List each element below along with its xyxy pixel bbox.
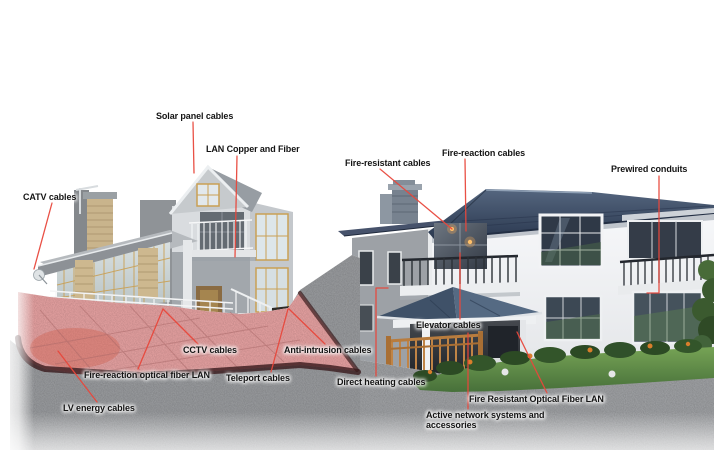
- garden-lamp-icon: [502, 369, 509, 376]
- label-prewired-conduits: Prewired conduits: [611, 164, 687, 174]
- label-lv-energy-cables: LV energy cables: [63, 403, 135, 413]
- wing-window: [388, 252, 401, 284]
- label-fire-reaction-cables: Fire-reaction cables: [442, 148, 525, 158]
- label-anti-intrusion-cables: Anti-intrusion cables: [284, 345, 371, 355]
- leader-solar-panel-cables: [193, 122, 194, 173]
- label-fire-resistant-optical-fiber-lan: Fire Resistant Optical Fiber LAN: [469, 394, 604, 404]
- label-cctv-cables: CCTV cables: [183, 345, 237, 355]
- houses-illustration: [0, 0, 714, 470]
- label-catv-cables: CATV cables: [23, 192, 76, 202]
- tower-window-upper: [256, 214, 288, 260]
- tower-window-lower: [256, 268, 288, 312]
- label-lan-copper-and-fiber: LAN Copper and Fiber: [206, 144, 300, 154]
- leader-catv-cables: [34, 203, 52, 269]
- balcony-slab: [186, 250, 256, 257]
- diagram-canvas: Solar panel cables LAN Copper and Fiber …: [0, 0, 714, 470]
- wing-window: [359, 251, 373, 285]
- facade-window-lower-left: [545, 296, 601, 340]
- left-fade: [0, 255, 34, 465]
- garden-lamp-icon: [609, 371, 616, 378]
- wing-window-lower: [359, 305, 373, 331]
- label-fire-reaction-optical-fiber-lan: Fire-reaction optical fiber LAN: [84, 370, 210, 380]
- facade-window-upper: [540, 215, 602, 267]
- label-direct-heating-cables: Direct heating cables: [337, 377, 425, 387]
- label-solar-panel-cables: Solar panel cables: [156, 111, 233, 121]
- bottom-fade: [0, 412, 714, 470]
- label-fire-resistant-cables: Fire-resistant cables: [345, 158, 430, 168]
- label-elevator-cables: Elevator cables: [416, 320, 481, 330]
- sunroom-window: [633, 292, 702, 343]
- label-active-network-systems: Active network systems and accessories: [426, 410, 548, 430]
- label-teleport-cables: Teleport cables: [226, 373, 290, 383]
